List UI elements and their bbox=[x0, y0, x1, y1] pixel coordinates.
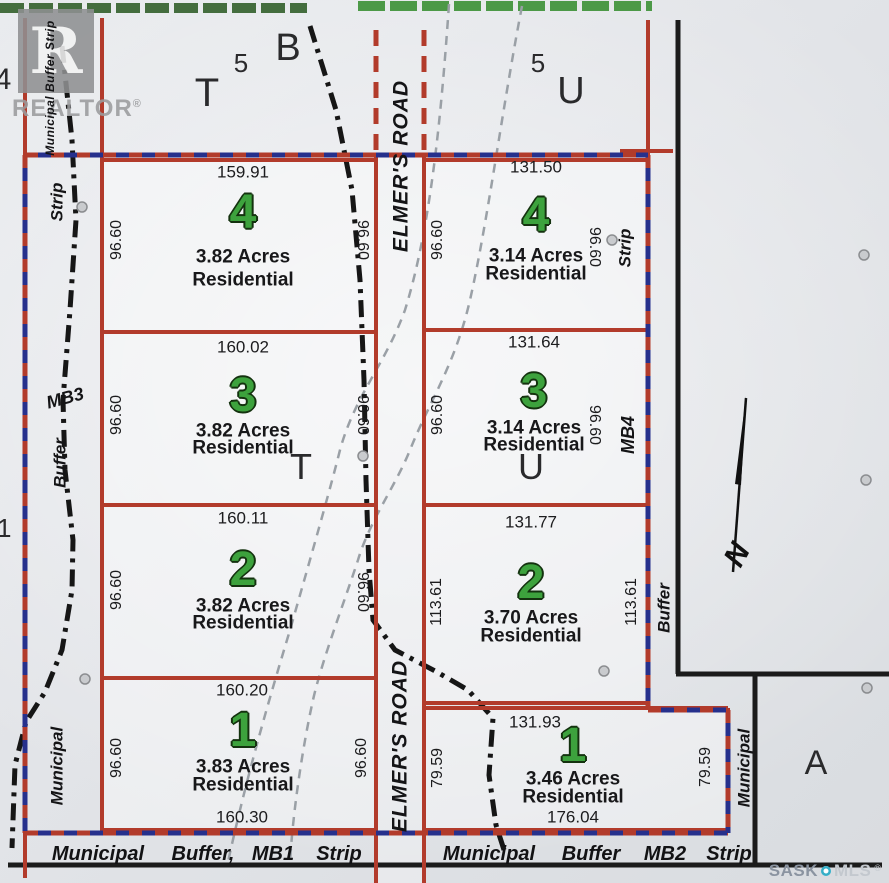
bottom-strip-word: MB1 bbox=[252, 844, 294, 864]
edge-number-11: 11 bbox=[0, 515, 12, 541]
mls-pin-icon bbox=[821, 866, 831, 876]
registered-mark: ® bbox=[874, 863, 881, 873]
side-dim: 96.60 bbox=[354, 738, 370, 778]
section-letter-t-top: T bbox=[195, 73, 219, 113]
section-number-5-left: 5 bbox=[234, 50, 248, 76]
realtor-wordmark: REALTOR® bbox=[12, 95, 122, 123]
north-arrow: N bbox=[718, 396, 758, 572]
lot-number: 1 bbox=[230, 707, 257, 755]
lot-zoning: Residential bbox=[480, 627, 581, 646]
side-dim: 96.60 bbox=[354, 395, 370, 435]
side-dim: 96.60 bbox=[586, 405, 602, 445]
sask-mls-watermark: SASK MLS ® bbox=[769, 861, 881, 881]
municipal-buffer-strip-label-topleft: Municipal Buffer Strip bbox=[44, 20, 56, 155]
lot-number: 3 bbox=[521, 368, 548, 416]
side-dim: 96.60 bbox=[109, 570, 125, 610]
buffer-label-left: Buffer bbox=[52, 438, 69, 488]
section-letter-u-top: U bbox=[557, 72, 584, 110]
side-dim: 113.61 bbox=[429, 578, 445, 626]
lot-number: 2 bbox=[518, 559, 545, 607]
side-dim: 79.59 bbox=[698, 747, 714, 787]
lot-dim-top: 131.64 bbox=[508, 334, 560, 351]
section-number-5-right: 5 bbox=[531, 50, 545, 76]
elmers-road-label-top: ELMER'S ROAD bbox=[391, 80, 412, 252]
section-letter-b: B bbox=[275, 29, 300, 67]
lot-dim-top: 131.50 bbox=[510, 159, 562, 176]
side-dim: 96.60 bbox=[109, 220, 125, 260]
lot-acres: 3.82 Acres bbox=[196, 248, 290, 267]
lot-dim-top: 160.20 bbox=[216, 682, 268, 699]
bottom-strip-word: Strip bbox=[316, 844, 362, 864]
municipal-label-left: Municipal bbox=[49, 727, 66, 805]
strip-label-right: Strip bbox=[617, 229, 634, 268]
realtor-logo: R REALTOR® bbox=[12, 9, 122, 123]
side-dim: 96.60 bbox=[430, 395, 446, 435]
lot-dim-top: 131.93 bbox=[509, 714, 561, 731]
bottom-strip-word: Municipal bbox=[443, 844, 535, 864]
lot-dim-top: 160.11 bbox=[218, 510, 269, 527]
side-dim: 96.60 bbox=[354, 220, 370, 260]
bottom-strip-word: Strip bbox=[706, 844, 752, 864]
sask-wordmark: SASK bbox=[769, 861, 818, 881]
side-dim: 96.60 bbox=[109, 395, 125, 435]
side-dim: 96.60 bbox=[430, 220, 446, 260]
side-dim: 79.59 bbox=[430, 748, 446, 788]
municipal-label-right: Municipal bbox=[736, 729, 753, 807]
strip-label-left: Strip bbox=[49, 183, 66, 222]
lot-dim-bottom: 176.04 bbox=[547, 809, 599, 826]
buffer-label-right: Buffer bbox=[656, 583, 673, 633]
lot-zoning: Residential bbox=[192, 614, 293, 633]
lot-number: 3 bbox=[230, 372, 257, 420]
side-dim: 96.60 bbox=[586, 227, 602, 267]
lot-dim-top: 131.77 bbox=[505, 514, 557, 531]
elmers-road-label-bottom: ELMER'S ROAD bbox=[390, 660, 411, 832]
bottom-strip-word: MB2 bbox=[644, 844, 686, 864]
lot-zoning: Residential bbox=[192, 439, 293, 458]
bottom-strip-word: Buffer, bbox=[172, 844, 235, 864]
parcel-letter-a: A bbox=[805, 746, 828, 780]
mb4-label: MB4 bbox=[619, 416, 637, 454]
bottom-strip-word: Buffer bbox=[562, 844, 621, 864]
plat-map-sign: N R REALTOR® T 5 B 5 U T U A 4 11 ELMER'… bbox=[0, 0, 889, 883]
registered-mark: ® bbox=[133, 98, 142, 110]
lot-number: 4 bbox=[230, 189, 257, 237]
side-dim: 96.60 bbox=[354, 572, 370, 612]
lot-number: 1 bbox=[560, 722, 587, 770]
lot-dim-bottom: 160.30 bbox=[216, 809, 268, 826]
side-dim: 96.60 bbox=[109, 738, 125, 778]
lot-zoning: Residential bbox=[483, 436, 584, 455]
mls-wordmark: MLS bbox=[834, 861, 871, 881]
lot-zoning: Residential bbox=[522, 788, 623, 807]
lot-zoning: Residential bbox=[192, 776, 293, 795]
side-dim: 113.61 bbox=[624, 578, 640, 626]
bottom-strip-word: Municipal bbox=[52, 844, 144, 864]
lot-zoning: Residential bbox=[485, 265, 586, 284]
lot-dim-top: 159.91 bbox=[217, 164, 269, 181]
lot-number: 4 bbox=[523, 192, 550, 240]
lot-number: 2 bbox=[230, 546, 257, 594]
north-arrow-n: N bbox=[718, 536, 758, 572]
lot-zoning: Residential bbox=[192, 271, 293, 290]
lot-dim-top: 160.02 bbox=[217, 339, 269, 356]
edge-number-4: 4 bbox=[0, 65, 11, 95]
